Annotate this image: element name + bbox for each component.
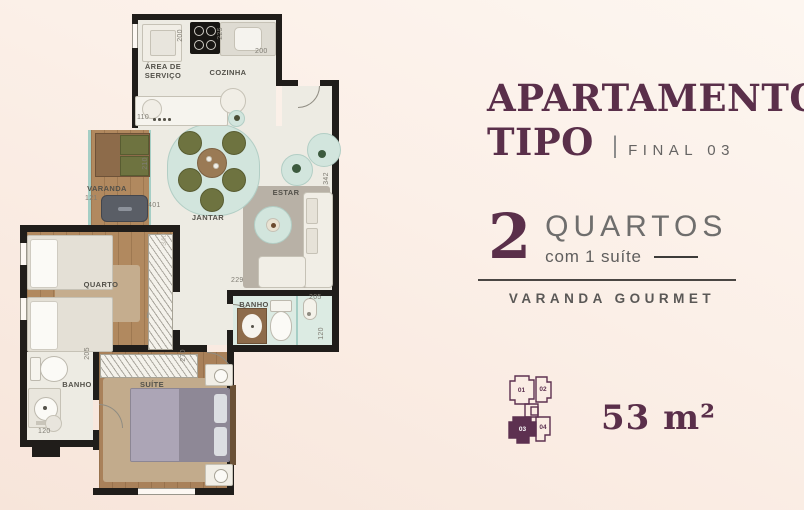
plant-leaf (234, 115, 240, 121)
shower-drain (307, 312, 311, 316)
wall (173, 225, 180, 292)
vanity (237, 308, 267, 344)
varanda-glass (88, 130, 91, 225)
table-plate (213, 163, 219, 169)
keyplan-unit-01-label: 01 (518, 387, 526, 394)
wall (276, 80, 298, 86)
suite-note: com 1 suíte (545, 247, 642, 267)
estar-plant (292, 164, 301, 173)
entry-plant (318, 150, 326, 158)
quarto-wardrobe (148, 234, 173, 350)
dining-chair (222, 131, 246, 155)
dim-label: 110 (137, 114, 149, 121)
dining-chair (222, 168, 246, 192)
bedrooms-block: 2 QUARTOS com 1 suíte (488, 212, 727, 267)
dim-label: 120 (318, 327, 325, 340)
floor-plan: ÁREA DE SERVIÇO COZINHA VARANDA JANTAR E… (0, 0, 440, 510)
room-label-varanda: VARANDA (86, 184, 128, 193)
keyplan-unit-03-label: 03 (519, 426, 527, 433)
dim-label: 205 (309, 294, 322, 301)
sofa-cushion (306, 228, 318, 254)
wall (93, 352, 99, 400)
cooktop-knobs (153, 118, 171, 121)
dim-label: 210 (142, 157, 149, 170)
dim-label: 229 (231, 277, 244, 284)
dim-label: 200 (255, 48, 268, 55)
toilet-bowl (40, 356, 68, 382)
room-label-estar: ESTAR (266, 188, 306, 197)
shower-glass (296, 296, 298, 345)
window (138, 488, 195, 495)
room-label-banho-suite: BANHO (58, 380, 96, 389)
dim-label: 340 (161, 233, 168, 246)
room-label-servico: ÁREA DE SERVIÇO (140, 62, 186, 81)
window (132, 24, 138, 48)
wall (276, 14, 282, 80)
flyer-canvas: ÁREA DE SERVIÇO COZINHA VARANDA JANTAR E… (0, 0, 804, 510)
varanda-cushion (120, 135, 149, 155)
dim-label: 120 (38, 428, 51, 435)
toilet-bowl (270, 311, 292, 341)
area-label: 53 m² (601, 398, 716, 438)
suite-dash (654, 256, 698, 258)
laundry-tank-basin (150, 30, 176, 56)
room-label-jantar: JANTAR (186, 213, 230, 222)
title-separator: | (612, 132, 618, 160)
dim-label: 342 (323, 172, 330, 185)
wall (227, 330, 233, 352)
wall (195, 488, 234, 495)
suite-headboard (230, 385, 236, 465)
dim-label: 225 (217, 27, 224, 40)
nightstand (205, 464, 233, 486)
final-label: FINAL 03 (628, 142, 735, 159)
nightstand (205, 364, 233, 386)
wall (132, 14, 282, 20)
room-label-cozinha: COZINHA (204, 68, 252, 77)
building-keyplan: 01 02 03 04 (505, 372, 555, 472)
column (32, 447, 60, 457)
wall (332, 80, 339, 352)
wall (93, 488, 138, 495)
keyplan-core-inner (531, 407, 538, 415)
dining-table (197, 148, 227, 178)
room-label-banho-social: BANHO (236, 300, 272, 309)
dining-chair (178, 168, 202, 192)
single-bed (27, 297, 113, 352)
wall (20, 225, 180, 232)
dim-label: 200 (177, 29, 184, 42)
divider-rule (478, 279, 736, 281)
dining-chair (200, 188, 224, 212)
feature-label: VARANDA GOURMET (440, 291, 784, 306)
wall (20, 440, 98, 447)
sofa-horizontal (258, 256, 306, 288)
keyplan-unit-02-label: 02 (539, 386, 547, 393)
table-plate (206, 156, 212, 162)
bedrooms-label: QUARTOS (545, 212, 727, 242)
dim-label: 121 (85, 195, 98, 202)
title-line-2: TIPO (487, 124, 594, 161)
wall (233, 345, 339, 352)
keyplan-unit-04-label: 04 (539, 424, 547, 431)
shower-head (303, 298, 317, 320)
dining-chair (178, 131, 202, 155)
dim-label: 205 (84, 347, 91, 360)
dim-label: 270 (180, 349, 187, 362)
title-line-1: APARTAMENTO (487, 80, 804, 117)
title-line-2-row: TIPO | FINAL 03 (487, 124, 735, 162)
room-label-quarto: QUARTO (78, 280, 124, 289)
window (20, 243, 27, 265)
room-label-suite: SUÍTE (132, 380, 172, 389)
window (20, 298, 27, 320)
coffee-decor (271, 223, 276, 228)
wall (227, 290, 339, 296)
sofa-cushion (306, 198, 318, 224)
stove (190, 22, 220, 54)
double-bed (130, 388, 230, 462)
bedrooms-count: 2 (488, 212, 531, 267)
grill (101, 195, 148, 222)
dim-label: 401 (148, 202, 161, 209)
